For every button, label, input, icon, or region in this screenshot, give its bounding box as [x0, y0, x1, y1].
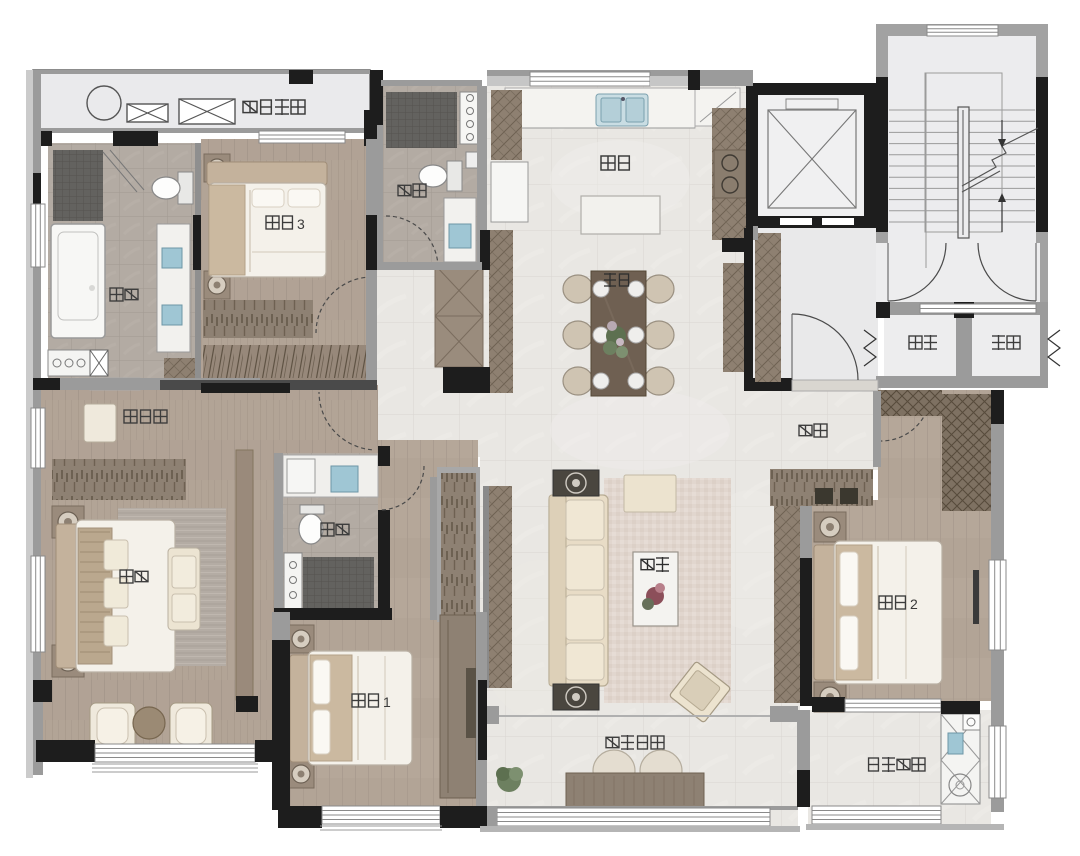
- svg-text:3: 3: [297, 216, 305, 232]
- svg-text:1: 1: [383, 694, 391, 710]
- svg-text:2: 2: [910, 596, 918, 612]
